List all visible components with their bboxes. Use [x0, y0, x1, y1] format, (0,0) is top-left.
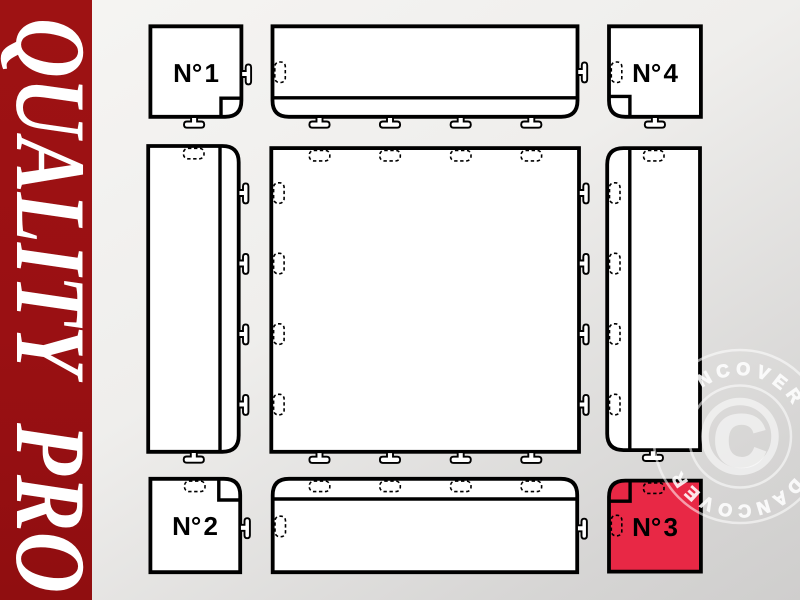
svg-text:N° 1: N° 1	[173, 58, 219, 88]
svg-text:N° 4: N° 4	[632, 58, 678, 88]
svg-text:N° 2: N° 2	[172, 511, 218, 541]
svg-text:PRO: PRO	[0, 422, 106, 593]
svg-text:C: C	[714, 401, 767, 482]
svg-text:QUALITY: QUALITY	[0, 18, 106, 383]
svg-text:N° 3: N° 3	[632, 512, 678, 542]
